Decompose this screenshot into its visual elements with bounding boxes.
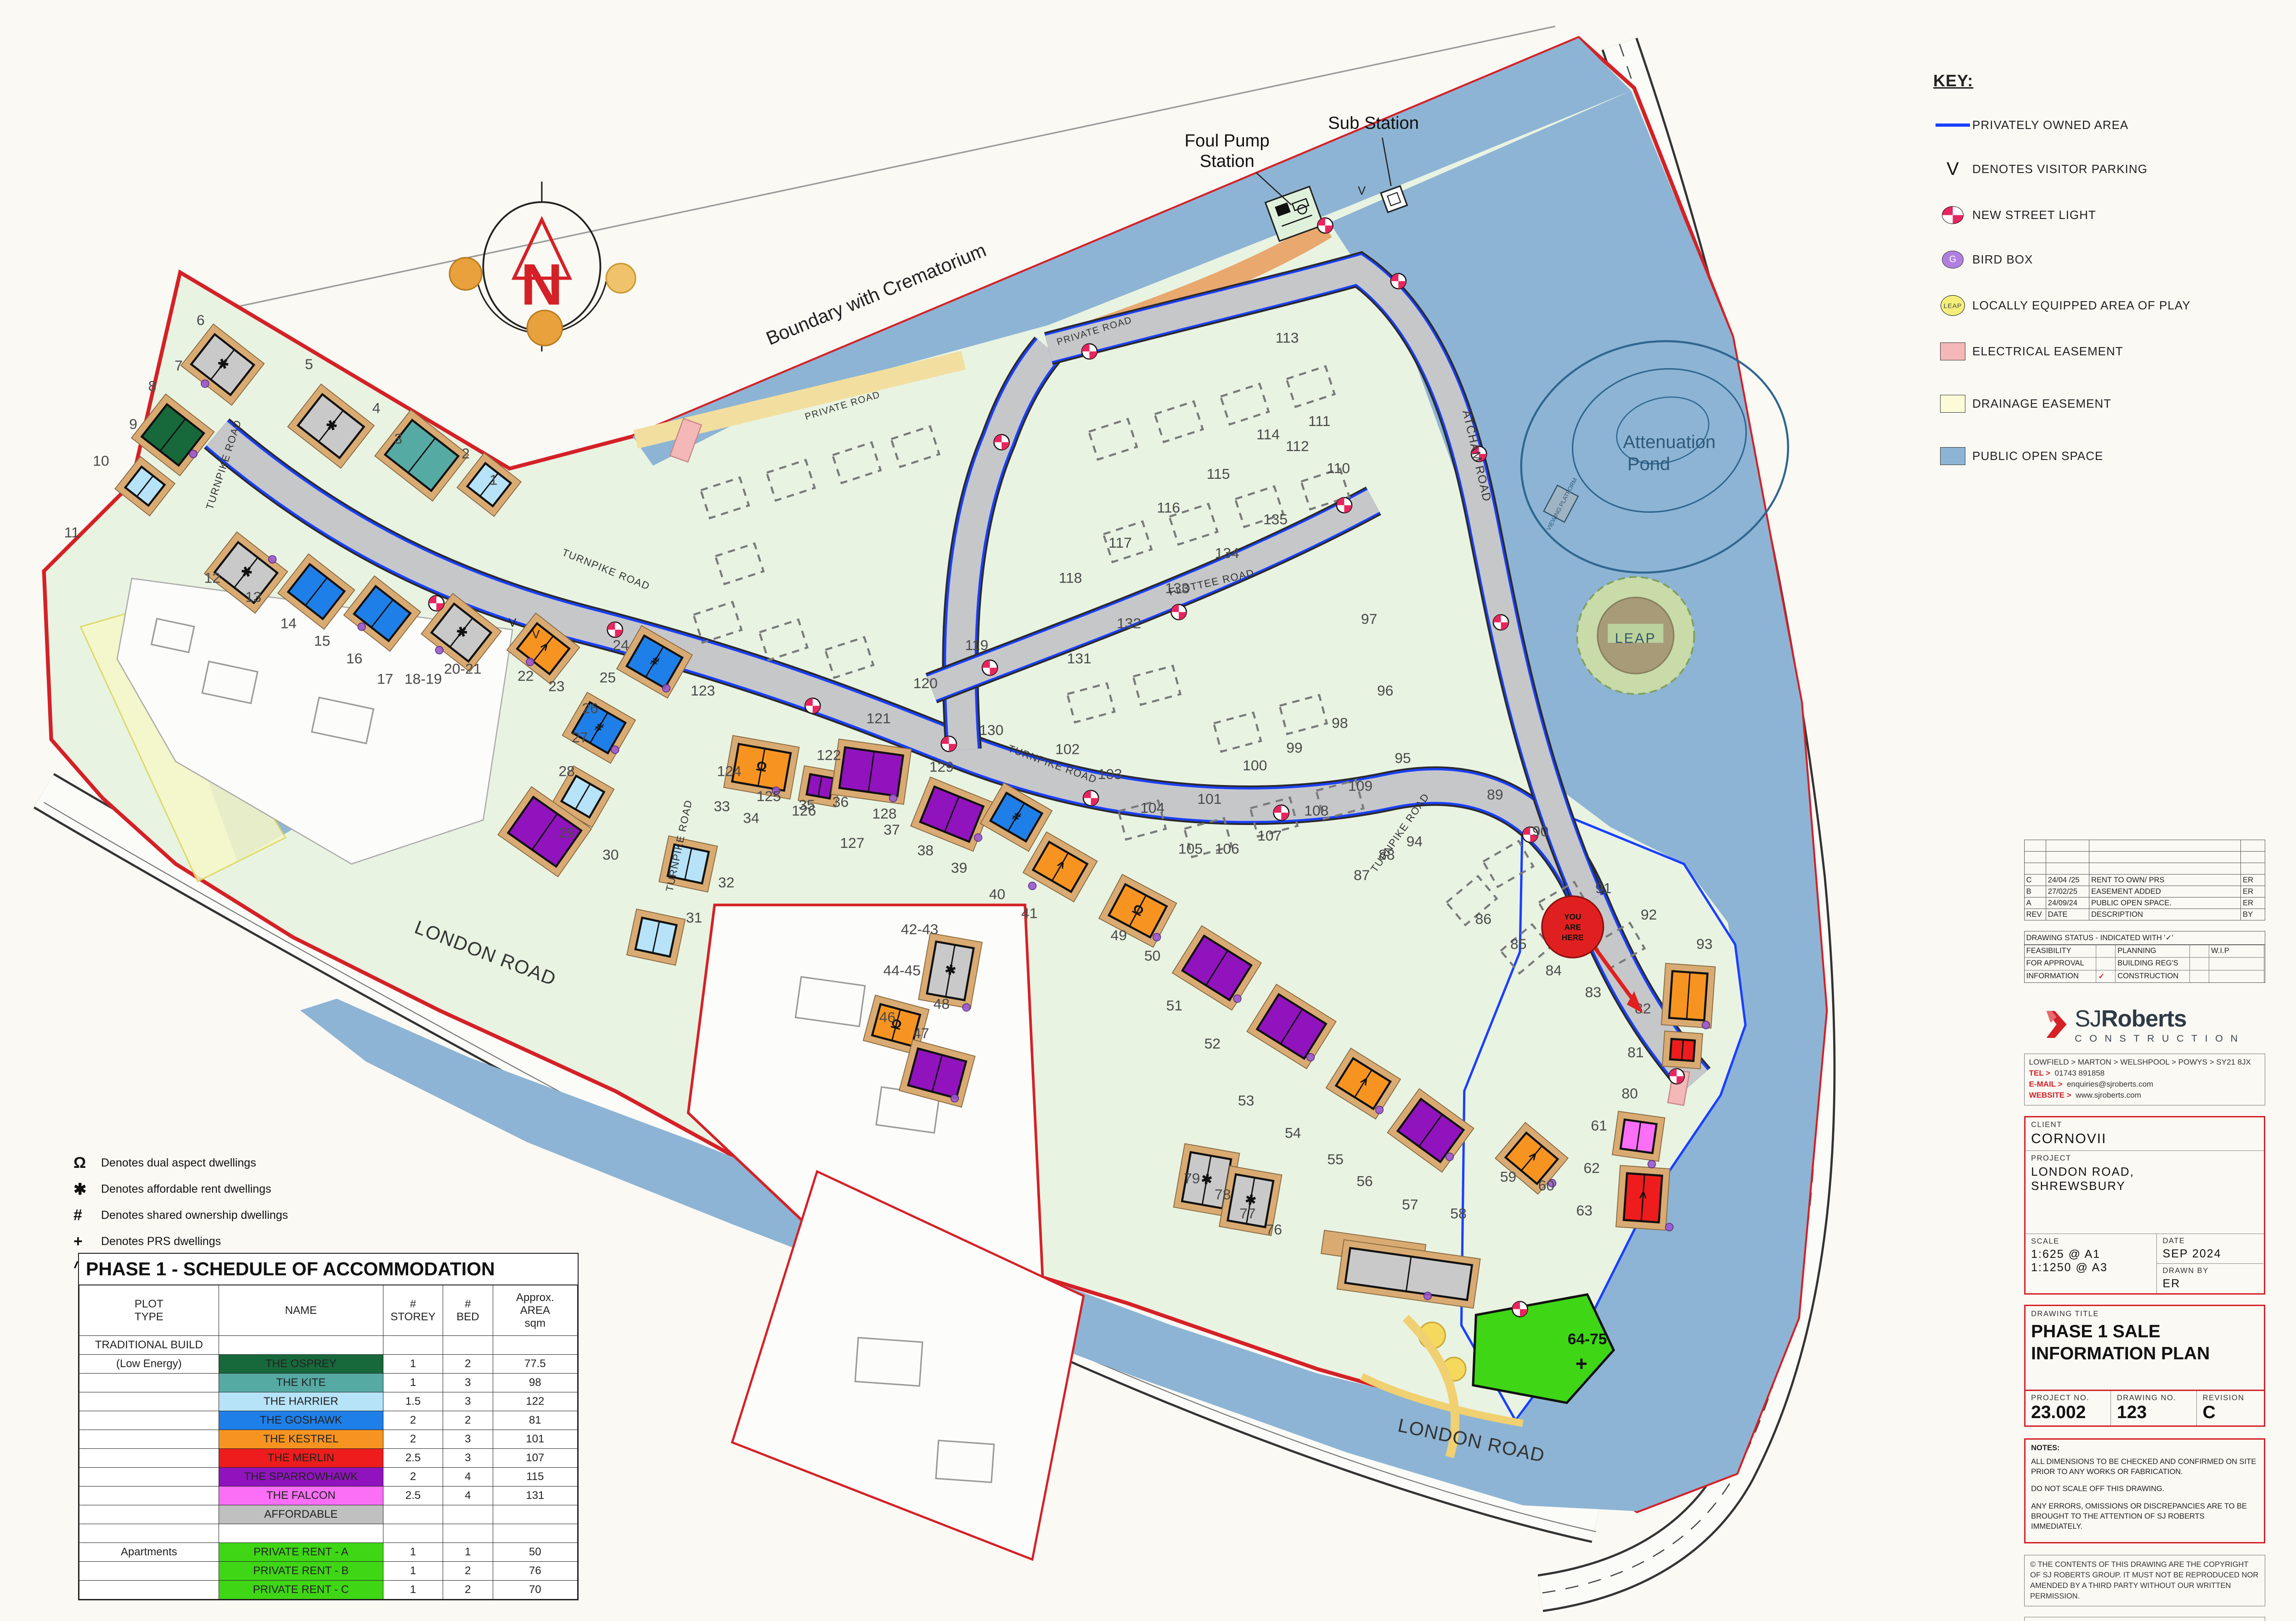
street-light-icon — [1493, 615, 1508, 630]
bird-box-icon — [1666, 1223, 1673, 1231]
street-light-icon — [994, 435, 1009, 450]
project-name: LONDON ROAD, SHREWSBURY — [2031, 1165, 2258, 1193]
plot-number: 118 — [1059, 569, 1082, 586]
plot-number: 112 — [1286, 438, 1309, 454]
dwelling-note: #Denotes shared ownership dwellings — [73, 1206, 487, 1224]
plot-number: 94 — [1407, 833, 1423, 850]
bird-box-icon — [201, 380, 209, 387]
bird-box-icon — [1029, 882, 1036, 890]
drawing-status-cell — [2190, 945, 2209, 958]
street-light-icon — [1942, 206, 1964, 224]
drawing-title: PHASE 1 SALE INFORMATION PLAN — [2031, 1321, 2258, 1366]
revision-letter: C — [2203, 1402, 2258, 1423]
scale-values: 1:625 @ A1 1:1250 @ A3 — [2031, 1248, 2150, 1274]
bird-box-icon — [269, 555, 276, 563]
visitor-parking-v: V — [532, 628, 540, 641]
bird-box-icon — [962, 1004, 970, 1011]
house-pink — [1612, 1111, 1665, 1161]
schedule-row: (Low Energy)THE OSPREY1277.5 — [79, 1355, 578, 1374]
plot-number: 131 — [1067, 650, 1092, 667]
plot-number: 107 — [1257, 827, 1282, 844]
plot-number: 87 — [1354, 867, 1370, 883]
plot-number: 84 — [1546, 962, 1562, 978]
bird-box-icon — [190, 450, 197, 458]
company-tel: 01743 891858 — [2054, 1069, 2105, 1077]
leap-area: LEAP — [1577, 577, 1694, 694]
plot-number: 81 — [1627, 1044, 1643, 1060]
key-item: ELECTRICAL EASEMENT — [1933, 342, 2268, 360]
drawing-status-cell: FOR APPROVAL — [2025, 957, 2097, 970]
street-light-icon — [1171, 605, 1186, 620]
schedule-row: PRIVATE RENT - C1270 — [79, 1581, 578, 1599]
drawing-status-cell: PLANNING — [2116, 945, 2190, 958]
svg-text:YOU: YOU — [1564, 912, 1581, 921]
bird-box-icon — [1233, 995, 1241, 1003]
plot-number: 132 — [1117, 615, 1141, 631]
plot-number: 79 — [1184, 1170, 1200, 1186]
plot-number: 48 — [934, 996, 950, 1012]
company-website: www.sjroberts.com — [2076, 1091, 2141, 1099]
bird-box-icon — [611, 746, 619, 754]
plot-number: 47 — [913, 1025, 929, 1041]
drawn-by-value: ER — [2162, 1277, 2258, 1290]
privately-owned-line-icon — [1936, 123, 1970, 127]
plot-number: 119 — [965, 637, 989, 653]
schedule-row: THE GOSHAWK2281 — [79, 1411, 578, 1430]
house-red: ^ — [1616, 1166, 1670, 1230]
bird-box-icon — [1307, 1054, 1315, 1061]
sjroberts-logo: SJRoberts CONSTRUCTION — [2024, 1005, 2265, 1045]
key-item: LEAPLOCALLY EQUIPPED AREA OF PLAY — [1933, 295, 2268, 316]
public-open-space-icon — [1940, 447, 1965, 465]
notes-box: NOTES: ALL DIMENSIONS TO BE CHECKED AND … — [2024, 1438, 2265, 1543]
plot-number: 120 — [913, 675, 938, 691]
schedule-column-header: Approx.AREAsqm — [493, 1285, 577, 1336]
bird-box-icon — [663, 684, 670, 692]
tree-icon — [450, 258, 482, 290]
plot-number: 5 — [305, 356, 313, 372]
plot-number: 37 — [884, 821, 900, 838]
plot-number: 135 — [1263, 511, 1288, 527]
tree-icon — [606, 264, 636, 293]
drawing-number: 123 — [2117, 1402, 2191, 1423]
plot-number: 16 — [346, 650, 362, 667]
plot-number: 9 — [129, 416, 137, 432]
street-light-icon — [982, 660, 997, 675]
plot-number: 8 — [148, 378, 157, 394]
plot-number: 55 — [1327, 1151, 1343, 1167]
plot-number: 29 — [558, 825, 574, 841]
bird-box-icon — [951, 1094, 959, 1102]
key-item-label: DRAINAGE EASEMENT — [1972, 397, 2111, 411]
plot-number: 78 — [1215, 1186, 1231, 1202]
plot-number: 22 — [518, 667, 534, 684]
key-title: KEY: — [1933, 71, 2268, 90]
drainage-easement-icon — [1940, 395, 1965, 413]
plot-number: 1 — [490, 471, 498, 488]
plot-number: 80 — [1621, 1085, 1638, 1101]
plot-number: 114 — [1256, 426, 1280, 443]
sjroberts-logo-mark — [2044, 1007, 2069, 1042]
revision-row: A24/09/24PUBLIC OPEN SPACE.ER — [2024, 897, 2265, 909]
plot-number: 128 — [872, 805, 896, 822]
drawing-status-cell — [2190, 970, 2209, 983]
visitor-parking-v: V — [1358, 185, 1366, 197]
street-light-icon — [429, 596, 444, 611]
plot-number: 13 — [245, 589, 261, 605]
drawing-status-title: DRAWING STATUS - INDICATED WITH '✓' — [2025, 931, 2265, 945]
plot-number: 14 — [280, 615, 296, 631]
plot-number: 20-21 — [444, 660, 482, 677]
key-item: PRIVATELY OWNED AREA — [1933, 118, 2268, 132]
schedule-row: THE FALCON2.54131 — [79, 1486, 578, 1505]
plot-number: 130 — [979, 722, 1003, 738]
plot-number: 58 — [1450, 1205, 1466, 1222]
plot-number: 34 — [743, 810, 759, 826]
schedule-row: TRADITIONAL BUILD — [79, 1336, 578, 1355]
plot-number: 93 — [1696, 936, 1712, 952]
plot-number: 44-45 — [884, 962, 921, 978]
schedule-column-header: NAME — [219, 1285, 383, 1336]
electrical-easement-icon — [1940, 342, 1965, 360]
key-item: NEW STREET LIGHT — [1933, 206, 2268, 224]
plot-number: 4 — [372, 399, 381, 416]
revision-row: B27/02/25EASEMENT ADDEDER — [2024, 886, 2265, 897]
street-light-icon — [1512, 1301, 1527, 1317]
plot-number: 56 — [1356, 1173, 1373, 1189]
plot-number: 2 — [461, 445, 470, 461]
plot-number: 33 — [714, 798, 730, 814]
drawing-status-cell — [2209, 970, 2264, 983]
plot-number: 32 — [718, 874, 734, 891]
schedule-table: PLOTTYPENAME#STOREY#BEDApprox.AREAsqm TR… — [79, 1285, 578, 1599]
company-address: LOWFIELD > MARTON > WELSHPOOL > POWYS > … — [2029, 1058, 2260, 1067]
street-light-icon — [608, 622, 623, 637]
plot-number: 18-19 — [405, 671, 442, 687]
house-symbol: ^ — [1638, 1190, 1647, 1205]
plot-number: 129 — [929, 758, 954, 775]
plot-number: 11 — [64, 524, 79, 541]
leap-icon: LEAP — [1941, 295, 1965, 316]
plot-number: 109 — [1348, 777, 1373, 794]
project-info-box: CLIENT CORNOVII PROJECT LONDON ROAD, SHR… — [2024, 1116, 2265, 1295]
plot-number: 126 — [792, 802, 816, 819]
schedule-of-accommodation: PHASE 1 - SCHEDULE OF ACCOMMODATION PLOT… — [78, 1253, 579, 1600]
plot-number: 101 — [1197, 791, 1221, 807]
plot-number: 23 — [548, 678, 564, 695]
key-item-label: DENOTES VISITOR PARKING — [1972, 162, 2148, 176]
schedule-row — [79, 1524, 578, 1543]
plot-number: 28 — [558, 763, 574, 780]
plot-number: 51 — [1166, 997, 1182, 1014]
apartments-prs-symbol: + — [1576, 1353, 1587, 1375]
visitor-parking-v-icon: V — [1947, 159, 1959, 179]
plot-number: 124 — [717, 763, 741, 780]
key-item-label: LOCALLY EQUIPPED AREA OF PLAY — [1972, 298, 2191, 313]
plot-number: 63 — [1576, 1202, 1593, 1218]
plot-number: 121 — [867, 710, 891, 727]
title-block: C24/04 /25RENT TO OWN/ PRSERB27/02/25EAS… — [2024, 840, 2265, 1621]
plot-number: 59 — [1500, 1168, 1516, 1185]
plot-number: 91 — [1595, 880, 1611, 897]
plot-number: 104 — [1140, 799, 1165, 816]
key-panel: KEY: PRIVATELY OWNED AREAVDENOTES VISITO… — [1933, 71, 2268, 499]
bird-box-icon — [1702, 1021, 1710, 1029]
plot-number: 122 — [816, 746, 841, 763]
plot-number: 117 — [1109, 534, 1132, 551]
plot-number: 110 — [1327, 460, 1350, 476]
plot-number: 57 — [1402, 1196, 1418, 1213]
plot-number: 31 — [686, 909, 702, 926]
schedule-row: PRIVATE RENT - B1276 — [79, 1562, 578, 1581]
street-light-icon — [1274, 805, 1289, 820]
svg-text:HERE: HERE — [1562, 933, 1584, 942]
plot-number: 86 — [1475, 911, 1491, 927]
company-registration-box: SJ ROBERTS CONSTRUCTION LTD:Registered i… — [2024, 1617, 2265, 1621]
plot-number: 100 — [1243, 757, 1267, 774]
plot-number: 39 — [951, 859, 967, 876]
street-light-icon — [1082, 344, 1097, 359]
bird-box-icon — [435, 646, 443, 654]
plot-number: 7 — [174, 357, 183, 374]
schedule-column-header: #STOREY — [383, 1285, 443, 1336]
bird-box-icon — [1424, 1292, 1432, 1300]
plot-number: 10 — [93, 452, 109, 469]
leap-label: LEAP — [1615, 631, 1656, 646]
house-red — [1662, 1031, 1703, 1069]
sub-station-label: Sub Station — [1328, 113, 1419, 133]
schedule-row: THE SPARROWHAWK24115 — [79, 1468, 578, 1486]
street-light-icon — [1669, 1069, 1684, 1084]
key-item: PUBLIC OPEN SPACE — [1933, 447, 2268, 465]
street-light-icon — [941, 736, 957, 752]
plot-number: 123 — [691, 682, 715, 699]
revision-row: C24/04 /25RENT TO OWN/ PRSER — [2024, 875, 2265, 886]
schedule-row: THE MERLIN2.53107 — [79, 1449, 578, 1468]
drawing-status-cell: CONSTRUCTION — [2116, 970, 2190, 983]
copyright-box: © THE CONTENTS OF THIS DRAWING ARE THE C… — [2024, 1555, 2265, 1606]
bird-box-icon — [889, 794, 897, 802]
schedule-row: THE KESTREL23101 — [79, 1430, 578, 1449]
site-plan-sheet: VIEWING PLATFORM LEAP — [0, 0, 2296, 1621]
drawing-status-cell — [2096, 957, 2116, 970]
schedule-row: ApartmentsPRIVATE RENT - A1150 — [79, 1543, 578, 1562]
schedule-row: THE HARRIER1.53122 — [79, 1392, 578, 1411]
plot-number: 40 — [989, 886, 1005, 902]
drawing-status-cell: FEASIBILITY — [2025, 945, 2097, 958]
plot-number: 30 — [602, 846, 619, 863]
plot-number: 99 — [1286, 740, 1302, 756]
schedule-title: PHASE 1 - SCHEDULE OF ACCOMMODATION — [79, 1254, 578, 1285]
company-email: enquiries@sjroberts.com — [2067, 1080, 2153, 1088]
plot-number: 50 — [1144, 947, 1160, 964]
plot-number: 127 — [840, 835, 864, 851]
client-name: CORNOVII — [2031, 1131, 2258, 1147]
plot-number: 53 — [1238, 1092, 1254, 1109]
plot-number: 60 — [1538, 1177, 1554, 1194]
drawing-numbers-row: PROJECT NO. 23.002 DRAWING NO. 123 REVIS… — [2024, 1391, 2265, 1427]
plot-number: 98 — [1332, 714, 1348, 731]
plot-number: 97 — [1361, 611, 1377, 627]
plot-number: 46 — [879, 1009, 895, 1025]
bird-box-icon — [358, 623, 366, 631]
plot-number: 89 — [1487, 786, 1503, 803]
key-item: GBIRD BOX — [1933, 251, 2268, 269]
drawing-status-cell: W.I.P — [2209, 945, 2264, 958]
plot-number: 12 — [204, 569, 220, 586]
street-light-icon — [1317, 218, 1333, 233]
apartments-label: 64-75 — [1568, 1331, 1607, 1348]
plot-number: 95 — [1395, 750, 1411, 766]
plot-number: 25 — [600, 669, 616, 685]
tree-icon — [527, 310, 563, 346]
dwelling-note: ΩDenotes dual aspect dwellings — [73, 1154, 487, 1172]
plot-number: 134 — [1215, 544, 1239, 561]
bird-box-icon — [1376, 1106, 1384, 1114]
plot-number: 52 — [1204, 1035, 1221, 1052]
street-light-icon — [805, 698, 820, 713]
dwelling-note: +Denotes PRS dwellings — [73, 1233, 487, 1251]
plot-number: 102 — [1055, 741, 1080, 757]
bird-box-icon — [526, 658, 534, 666]
date-value: SEP 2024 — [2162, 1247, 2258, 1261]
plot-number: 76 — [1266, 1221, 1282, 1238]
svg-text:N: N — [521, 252, 563, 317]
plot-number: 62 — [1583, 1160, 1599, 1176]
svg-text:ARE: ARE — [1564, 922, 1581, 931]
plot-number: 41 — [1021, 905, 1037, 921]
street-light-icon — [1337, 498, 1352, 513]
plot-number: 83 — [1585, 984, 1601, 1000]
plot-number: 3 — [394, 430, 402, 447]
plot-number: 15 — [314, 633, 330, 649]
schedule-row: AFFORDABLE — [79, 1505, 578, 1524]
plot-number: 42-43 — [901, 921, 939, 937]
plot-number: 92 — [1641, 906, 1657, 923]
plot-number: 85 — [1510, 936, 1526, 952]
plot-number: 26 — [582, 700, 598, 716]
schedule-column-header: PLOTTYPE — [79, 1285, 219, 1336]
plot-number: 90 — [1532, 823, 1548, 839]
plot-number: 6 — [197, 312, 205, 328]
plot-number: 54 — [1285, 1124, 1301, 1141]
plot-number: 61 — [1591, 1117, 1607, 1133]
drawing-status-box: DRAWING STATUS - INDICATED WITH '✓' FEAS… — [2024, 931, 2265, 983]
attenuation-pond-label2: Pond — [1627, 454, 1670, 474]
drawing-status-cell — [2096, 945, 2116, 958]
key-item: VDENOTES VISITOR PARKING — [1933, 159, 2268, 179]
plot-number: 77 — [1239, 1205, 1255, 1222]
company-contact-box: LOWFIELD > MARTON > WELSHPOOL > POWYS > … — [2024, 1054, 2265, 1105]
plot-number: 106 — [1215, 841, 1239, 857]
plot-number: 96 — [1377, 682, 1393, 699]
street-light-icon — [1083, 791, 1098, 806]
key-item-label: BIRD BOX — [1972, 252, 2033, 267]
plot-number: 111 — [1308, 413, 1330, 429]
plot-number: 113 — [1276, 329, 1299, 346]
plot-number: 17 — [377, 671, 393, 687]
plot-number: 103 — [1098, 766, 1122, 782]
bird-box-icon — [974, 834, 982, 841]
drawing-status-cell: BUILDING REG'S — [2116, 957, 2190, 970]
house-lblue — [627, 909, 685, 965]
street-light-icon — [1391, 274, 1406, 289]
drawing-title-box: DRAWING TITLE PHASE 1 SALE INFORMATION P… — [2024, 1305, 2265, 1391]
bird-box-icon: G — [1942, 251, 1964, 269]
plot-number: 49 — [1110, 927, 1126, 943]
foul-pump-label: Foul Pump — [1185, 131, 1270, 151]
drawing-status-cell — [2209, 957, 2264, 970]
bird-box-icon — [1446, 1153, 1454, 1161]
house-orange — [1661, 963, 1715, 1028]
project-number: 23.002 — [2031, 1402, 2105, 1423]
plot-number: 27 — [572, 729, 588, 746]
key-item-label: PUBLIC OPEN SPACE — [1972, 449, 2103, 463]
bird-box-icon — [1153, 933, 1161, 941]
plot-number: 125 — [757, 788, 781, 804]
drawing-status-cell — [2190, 957, 2209, 970]
plot-number: 105 — [1178, 841, 1203, 857]
plot-number: 116 — [1157, 499, 1180, 516]
plot-number: 38 — [917, 842, 934, 858]
attenuation-pond-label: Attenuation — [1623, 432, 1716, 452]
key-item-label: PRIVATELY OWNED AREA — [1972, 118, 2128, 132]
plot-number: 24 — [613, 637, 629, 653]
schedule-row: THE KITE1398 — [79, 1374, 578, 1392]
drawing-status-cell: ✓ — [2096, 970, 2116, 983]
revision-table: C24/04 /25RENT TO OWN/ PRSERB27/02/25EAS… — [2024, 840, 2265, 920]
house-grey: ✱ — [918, 933, 982, 1009]
dwelling-note: ✱Denotes affordable rent dwellings — [73, 1180, 487, 1199]
plot-number: 115 — [1207, 466, 1230, 482]
key-item: DRAINAGE EASEMENT — [1933, 395, 2268, 413]
schedule-column-header: #BED — [443, 1285, 493, 1336]
visitor-parking-v: V — [509, 617, 517, 629]
plot-number: 36 — [833, 794, 849, 810]
foul-pump-label2: Station — [1200, 151, 1255, 171]
key-item-label: NEW STREET LIGHT — [1972, 208, 2096, 222]
key-item-label: ELECTRICAL EASEMENT — [1972, 344, 2123, 359]
plot-number: 108 — [1304, 802, 1328, 819]
drawing-status-cell: INFORMATION — [2025, 970, 2097, 983]
bird-box-icon — [1648, 1161, 1656, 1168]
